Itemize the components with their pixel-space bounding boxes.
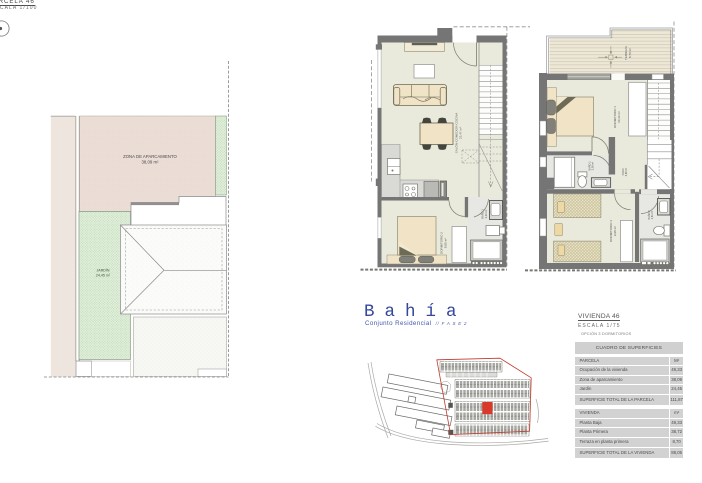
svg-text:8,85 m²: 8,85 m² bbox=[443, 238, 447, 248]
svg-text:24,45 m²: 24,45 m² bbox=[96, 273, 111, 277]
svg-text:3,06 m²: 3,06 m² bbox=[592, 162, 595, 171]
svg-text:ZONA DE APARCAMIENTO: ZONA DE APARCAMIENTO bbox=[123, 154, 177, 159]
svg-text:3,30 m²: 3,30 m² bbox=[484, 209, 488, 218]
svg-text:JARDÍN: JARDÍN bbox=[97, 269, 110, 273]
svg-text:8,70 m²: 8,70 m² bbox=[628, 48, 632, 58]
svg-text:2,81 m²: 2,81 m² bbox=[651, 211, 654, 220]
svg-text:3,86 m²: 3,86 m² bbox=[625, 168, 628, 177]
svg-text:38,09 m²: 38,09 m² bbox=[142, 160, 160, 165]
svg-text:10,34 m²: 10,34 m² bbox=[617, 111, 621, 123]
svg-text:22,47 m²: 22,47 m² bbox=[459, 127, 463, 139]
svg-text:9,98 m²: 9,98 m² bbox=[613, 226, 617, 236]
